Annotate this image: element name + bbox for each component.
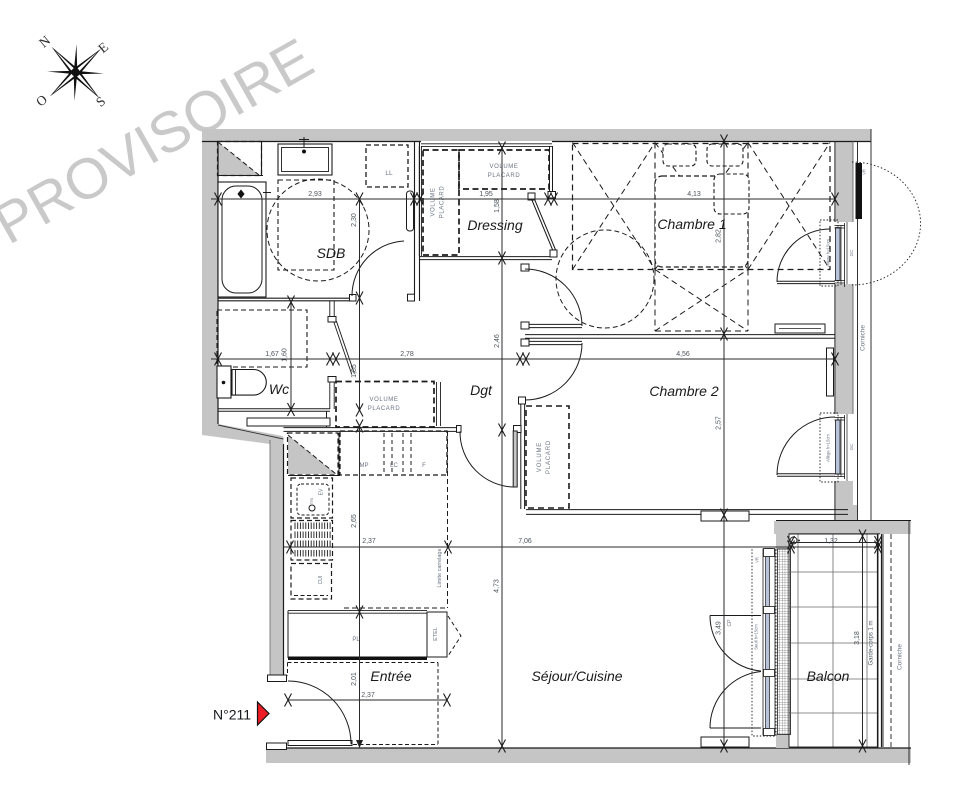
svg-text:2,01: 2,01 [351,672,358,686]
svg-text:SDB: SDB [317,245,346,261]
svg-text:VOLUME: VOLUME [490,164,519,170]
svg-text:Limite carrelage: Limite carrelage [437,548,443,587]
svg-text:2,78: 2,78 [400,351,414,358]
svg-text:3,18: 3,18 [854,631,861,645]
svg-text:1,58: 1,58 [494,199,501,213]
svg-text:VR: VR [862,169,867,175]
svg-text:Wc: Wc [269,381,289,397]
svg-text:7,06: 7,06 [518,538,532,545]
svg-text:Séjour/Cuisine: Séjour/Cuisine [531,668,622,684]
svg-text:PLACARD: PLACARD [368,406,401,412]
svg-text:2,57: 2,57 [716,416,723,430]
svg-text:2,30: 2,30 [351,213,358,227]
svg-text:LC: LC [390,463,398,469]
svg-text:F: F [422,463,426,469]
svg-text:MP: MP [360,463,369,469]
svg-text:2,37: 2,37 [362,538,376,545]
svg-text:2,65: 2,65 [351,514,358,528]
svg-text:Corniche: Corniche [860,325,867,351]
svg-text:ETEL: ETEL [433,627,439,641]
svg-text:GC: GC [849,249,854,257]
svg-text:Garde-corps 1 m: Garde-corps 1 m [869,620,875,665]
svg-text:TRI: TRI [309,498,314,504]
svg-text:N°211: N°211 [213,707,251,723]
svg-text:2,37: 2,37 [361,692,375,699]
svg-text:1,67: 1,67 [265,351,279,358]
svg-text:2,93: 2,93 [308,191,322,198]
svg-text:PLACARD: PLACARD [546,440,552,474]
svg-text:VOLUME: VOLUME [537,442,543,472]
svg-text:Corniche: Corniche [897,644,904,670]
svg-text:VOLUME: VOLUME [431,188,437,217]
svg-text:GC: GC [849,443,854,451]
svg-text:4,13: 4,13 [687,191,701,198]
svg-text:CUI: CUI [318,576,324,585]
svg-text:VOLUME: VOLUME [370,397,399,403]
svg-text:Allège h=15cm: Allège h=15cm [826,239,831,267]
svg-text:1,95: 1,95 [479,191,493,198]
svg-text:Dressing: Dressing [467,217,522,233]
svg-text:4,73: 4,73 [494,579,501,593]
svg-text:PLACARD: PLACARD [488,173,521,179]
svg-text:Seuil h=15cm: Seuil h=15cm [754,624,759,650]
svg-text:Balcon: Balcon [807,668,850,684]
svg-text:2,46: 2,46 [494,334,501,348]
svg-text:VR: VR [755,557,760,563]
svg-text:CP: CP [727,619,733,627]
svg-text:1,32: 1,32 [824,538,838,545]
svg-text:Dgt: Dgt [470,382,493,398]
svg-text:Entrée: Entrée [370,668,411,684]
svg-text:Chambre 1: Chambre 1 [657,216,726,232]
svg-text:1,60: 1,60 [282,348,289,362]
svg-text:4,56: 4,56 [676,351,690,358]
svg-text:1,85: 1,85 [351,364,358,378]
svg-text:LL: LL [385,170,393,177]
svg-text:Allège h=15cm: Allège h=15cm [826,434,831,462]
svg-text:EV: EV [319,488,325,495]
svg-text:PLACARD: PLACARD [440,186,446,219]
svg-text:Chambre 2: Chambre 2 [649,383,718,399]
svg-text:3,49: 3,49 [716,621,723,635]
